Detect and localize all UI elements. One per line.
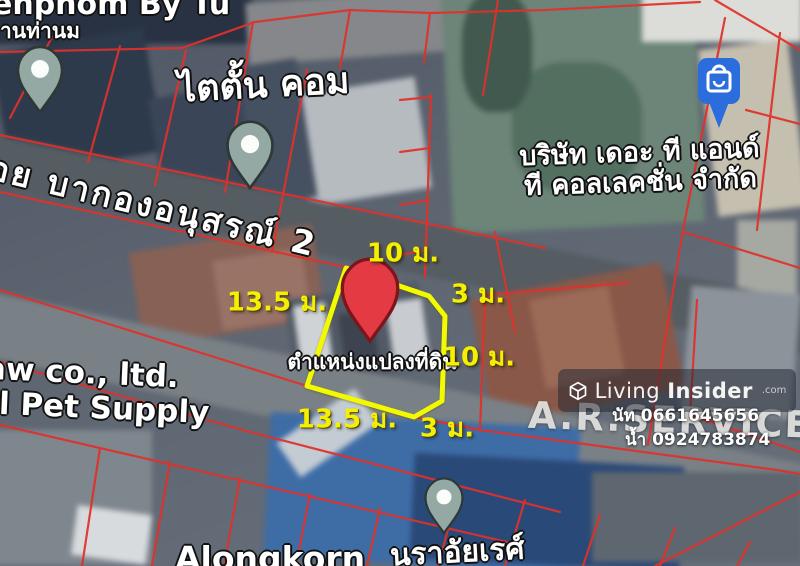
business-label-alongkorn: Alongkorn <box>175 541 365 566</box>
business-label-top-left-sub: านท่านม <box>0 20 80 44</box>
watermark-suffix: .com <box>762 385 787 396</box>
measurement-left: 13.5 ม. <box>227 282 327 323</box>
poi-pin-icon[interactable] <box>18 47 62 112</box>
measurement-right: 10 ม. <box>443 337 515 378</box>
business-label-company: บริษัท เดอะ ที แอนด์ ที คอลเลคชั่น จำกัด <box>464 132 800 205</box>
poi-pin-icon[interactable] <box>228 122 273 188</box>
measurement-top: 10 ม. <box>367 233 439 274</box>
business-label-bottom-right: นราอัยเรศ์ <box>389 533 525 566</box>
poi-pin-icon[interactable] <box>426 478 463 533</box>
living-insider-logo-icon <box>568 381 588 401</box>
plot-location-label: ตำแหน่งแปลงที่ดิน <box>287 351 456 375</box>
watermark-brand: Living Insider <box>595 379 753 403</box>
contact-phone-1: นัท 0661645656 <box>612 402 759 429</box>
measurement-bottom-right: 3 ม. <box>420 408 474 449</box>
measurement-top-right: 3 ม. <box>451 274 505 315</box>
satellite-map-canvas[interactable]: enphom By Tu านท่านม ไตตั้น คอม บริษัท เ… <box>0 0 800 566</box>
shop-pin-icon[interactable] <box>698 58 740 128</box>
contact-phone-2: น้ำ 0924783874 <box>625 426 770 453</box>
measurement-bottom: 13.5 ม. <box>297 399 397 440</box>
